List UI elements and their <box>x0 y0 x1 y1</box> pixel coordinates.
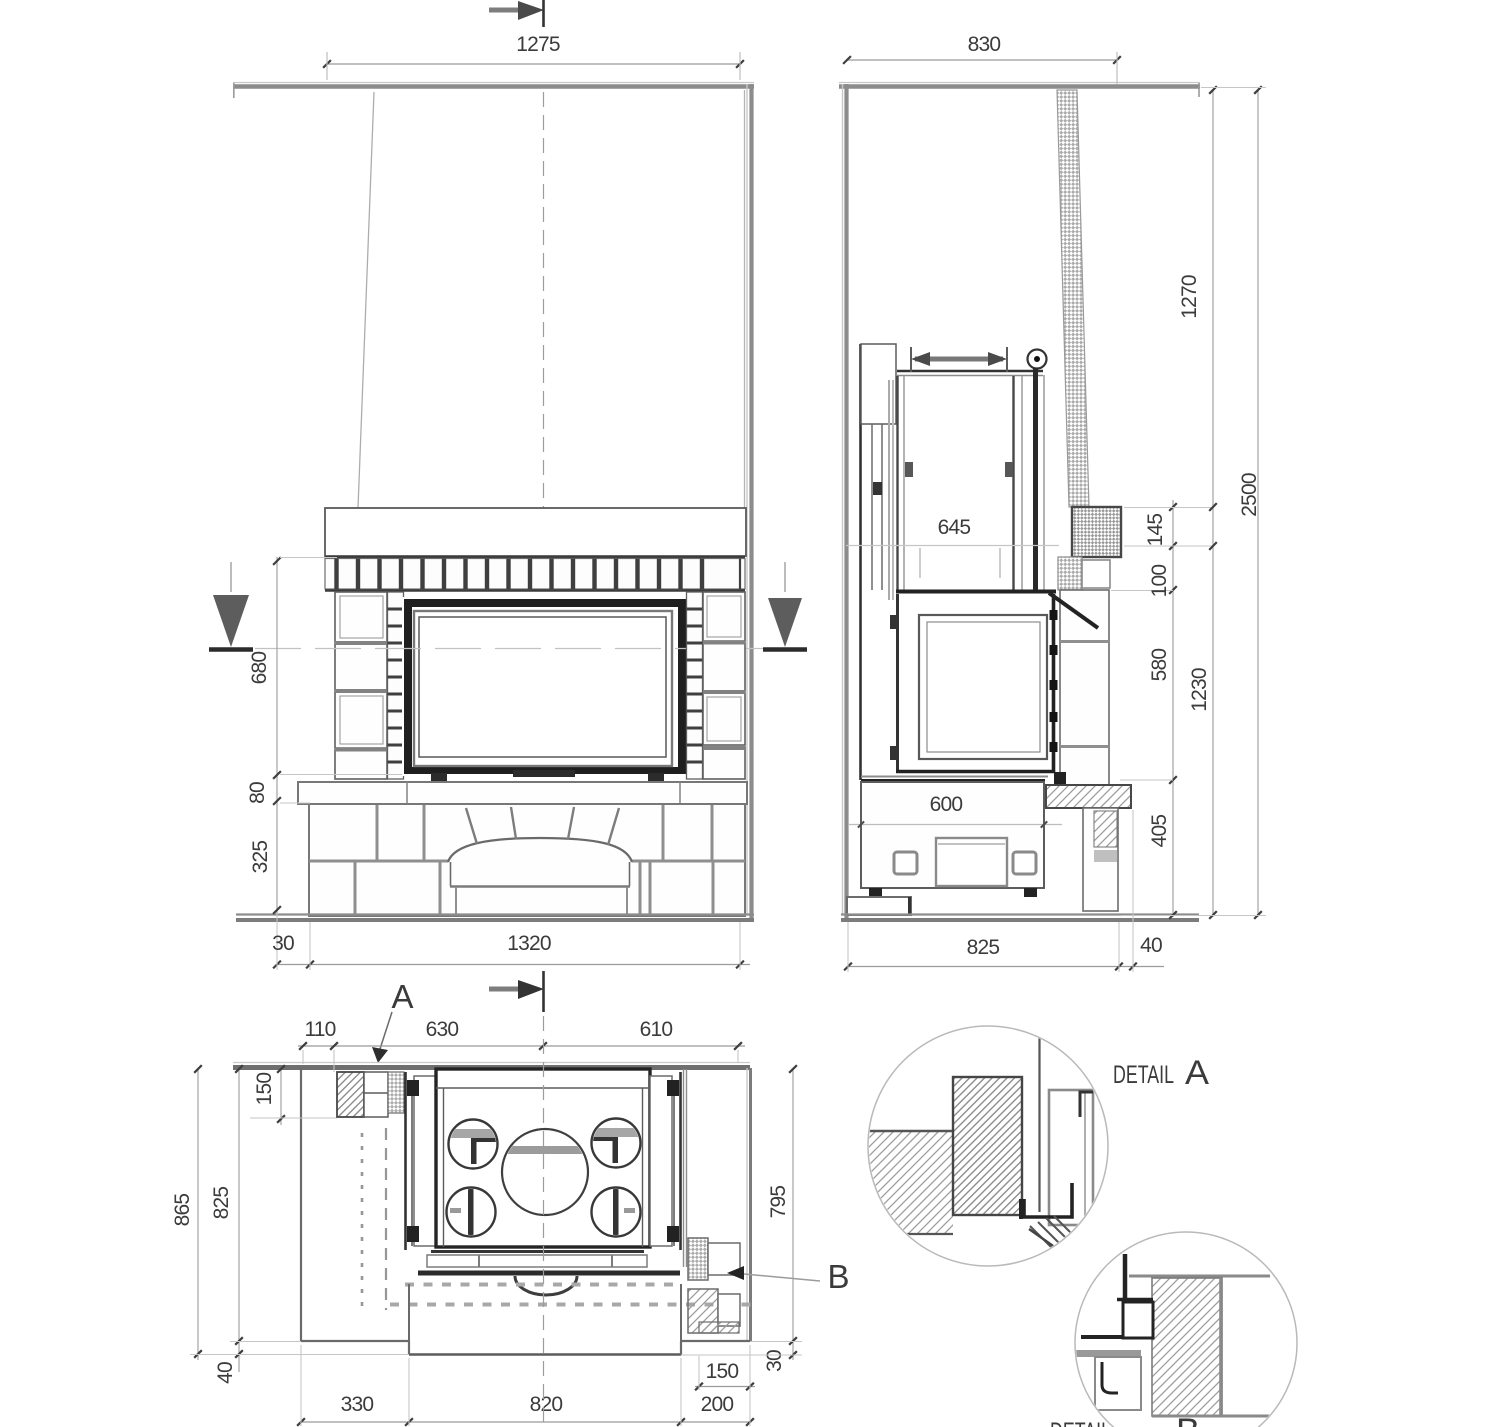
svg-text:405: 405 <box>1148 815 1171 848</box>
svg-text:1230: 1230 <box>1188 668 1211 712</box>
svg-text:325: 325 <box>249 841 272 874</box>
svg-text:795: 795 <box>767 1186 790 1219</box>
svg-text:580: 580 <box>1148 649 1171 682</box>
svg-text:150: 150 <box>706 1360 739 1383</box>
svg-text:A: A <box>1185 1054 1209 1092</box>
svg-text:150: 150 <box>253 1073 276 1106</box>
svg-text:330: 330 <box>341 1393 374 1416</box>
svg-text:630: 630 <box>426 1018 459 1041</box>
svg-text:100: 100 <box>1148 565 1171 598</box>
svg-text:680: 680 <box>248 652 271 685</box>
svg-text:200: 200 <box>701 1393 734 1416</box>
svg-text:145: 145 <box>1144 514 1167 547</box>
svg-text:1320: 1320 <box>507 932 551 955</box>
svg-text:2500: 2500 <box>1238 473 1261 517</box>
svg-text:DETAIL: DETAIL <box>1113 1061 1174 1089</box>
svg-text:40: 40 <box>1140 934 1162 957</box>
svg-text:820: 820 <box>530 1393 563 1416</box>
svg-text:1270: 1270 <box>1178 275 1201 319</box>
svg-text:825: 825 <box>967 936 1000 959</box>
svg-text:A: A <box>391 978 413 1015</box>
svg-text:80: 80 <box>246 782 269 804</box>
svg-text:B: B <box>1176 1412 1200 1427</box>
svg-text:825: 825 <box>210 1187 233 1220</box>
svg-text:110: 110 <box>304 1018 335 1041</box>
svg-text:830: 830 <box>968 33 1001 56</box>
svg-text:30: 30 <box>763 1350 786 1372</box>
svg-text:865: 865 <box>171 1194 194 1227</box>
svg-text:610: 610 <box>640 1018 673 1041</box>
svg-text:1275: 1275 <box>516 33 560 56</box>
svg-text:B: B <box>827 1258 848 1295</box>
svg-text:645: 645 <box>938 516 971 539</box>
svg-text:30: 30 <box>272 932 294 955</box>
svg-text:40: 40 <box>214 1362 237 1384</box>
svg-text:DETAIL: DETAIL <box>1050 1418 1111 1427</box>
svg-text:600: 600 <box>930 793 963 816</box>
